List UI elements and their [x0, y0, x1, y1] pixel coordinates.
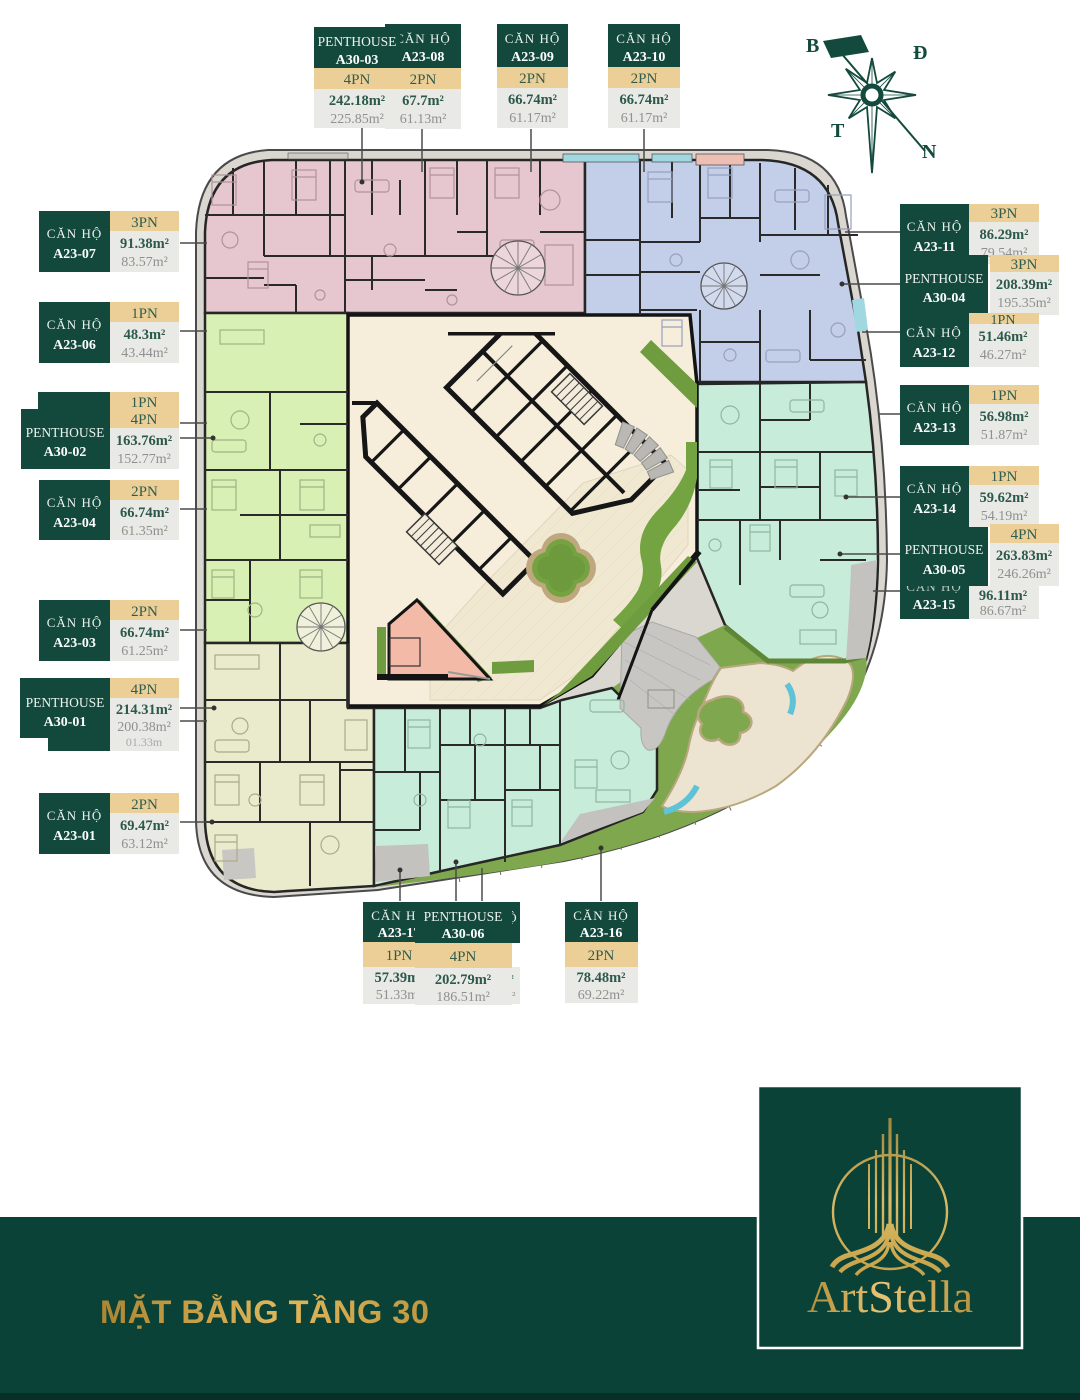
svg-text:2PN: 2PN: [588, 948, 615, 964]
svg-text:CĂN HỘ: CĂN HỘ: [395, 31, 450, 46]
svg-text:CĂN HỘ: CĂN HỘ: [505, 31, 560, 46]
svg-text:69.22m²: 69.22m²: [578, 988, 625, 1003]
svg-text:51.87m²: 51.87m²: [981, 428, 1028, 443]
svg-text:4PN: 4PN: [450, 949, 477, 965]
svg-text:86.67m²: 86.67m²: [980, 604, 1027, 619]
svg-text:CĂN HỘ: CĂN HỘ: [573, 908, 628, 923]
svg-text:CĂN HỘ: CĂN HỘ: [907, 400, 962, 415]
svg-text:195.35m²: 195.35m²: [997, 296, 1051, 311]
svg-text:83.57m²: 83.57m²: [121, 255, 168, 270]
svg-text:A23-09: A23-09: [511, 50, 554, 65]
svg-text:A23-11: A23-11: [914, 240, 956, 255]
svg-text:A23-08: A23-08: [402, 50, 445, 65]
svg-text:CĂN HỘ: CĂN HỘ: [47, 495, 102, 510]
svg-text:CĂN HỘ: CĂN HỘ: [906, 325, 961, 340]
svg-text:69.47m²: 69.47m²: [120, 818, 169, 834]
svg-text:152.77m²: 152.77m²: [117, 452, 171, 467]
svg-text:63.12m²: 63.12m²: [121, 837, 168, 852]
svg-text:61.25m²: 61.25m²: [121, 644, 168, 659]
svg-text:263.83m²: 263.83m²: [996, 548, 1052, 564]
svg-text:PENTHOUSE: PENTHOUSE: [26, 695, 105, 710]
svg-text:A23-04: A23-04: [53, 516, 96, 531]
svg-text:A23-03: A23-03: [53, 636, 96, 651]
svg-text:96.11m²: 96.11m²: [979, 588, 1027, 604]
svg-text:PENTHOUSE: PENTHOUSE: [905, 542, 984, 557]
svg-text:78.48m²: 78.48m²: [576, 970, 625, 986]
svg-text:A23-10: A23-10: [623, 50, 666, 65]
svg-text:4PN: 4PN: [344, 72, 371, 88]
svg-text:66.74m²: 66.74m²: [120, 505, 169, 521]
svg-text:PENTHOUSE: PENTHOUSE: [905, 271, 984, 286]
svg-text:66.74m²: 66.74m²: [508, 92, 557, 108]
svg-text:46.27m²: 46.27m²: [980, 348, 1027, 363]
svg-text:208.39m²: 208.39m²: [996, 277, 1052, 293]
svg-text:66.74m²: 66.74m²: [120, 625, 169, 641]
svg-text:67.7m²: 67.7m²: [402, 93, 444, 109]
svg-text:A30-01: A30-01: [44, 715, 87, 730]
svg-text:202.79m²: 202.79m²: [435, 972, 491, 988]
svg-text:4PN: 4PN: [131, 412, 158, 428]
svg-text:4PN: 4PN: [1011, 527, 1038, 543]
svg-text:43.44m²: 43.44m²: [121, 346, 168, 361]
svg-text:1PN: 1PN: [131, 306, 158, 322]
svg-text:CĂN HỘ: CĂN HỘ: [616, 31, 671, 46]
svg-text:1PN: 1PN: [991, 469, 1018, 485]
svg-text:A23-16: A23-16: [580, 926, 623, 941]
svg-text:225.85m²: 225.85m²: [330, 112, 384, 127]
svg-text:A30-04: A30-04: [923, 291, 966, 306]
svg-text:A23-12: A23-12: [913, 346, 956, 361]
svg-text:PENTHOUSE: PENTHOUSE: [424, 909, 503, 924]
svg-text:2PN: 2PN: [631, 71, 658, 87]
svg-text:A23-01: A23-01: [53, 829, 96, 844]
svg-text:T: T: [831, 120, 845, 142]
svg-text:ArtStella: ArtStella: [807, 1271, 973, 1322]
svg-text:2PN: 2PN: [131, 484, 158, 500]
svg-text:56.98m²: 56.98m²: [979, 409, 1028, 425]
svg-text:2PN: 2PN: [131, 797, 158, 813]
svg-text:1PN: 1PN: [991, 388, 1018, 404]
svg-text:A23-14: A23-14: [913, 502, 956, 517]
svg-text:CĂN HỘ: CĂN HỘ: [47, 226, 102, 241]
svg-text:A30-05: A30-05: [923, 563, 966, 578]
svg-text:N: N: [922, 141, 937, 163]
svg-text:2PN: 2PN: [410, 72, 437, 88]
svg-text:A23-06: A23-06: [53, 338, 96, 353]
svg-text:51.46m²: 51.46m²: [978, 329, 1027, 345]
svg-text:CĂN HỘ: CĂN HỘ: [47, 808, 102, 823]
svg-text:MẶT BẰNG TẦNG 30: MẶT BẰNG TẦNG 30: [100, 1293, 429, 1330]
svg-text:3PN: 3PN: [1011, 257, 1038, 273]
svg-text:242.18m²: 242.18m²: [329, 93, 385, 109]
svg-text:61.17m²: 61.17m²: [509, 111, 556, 126]
svg-text:214.31m²: 214.31m²: [116, 702, 172, 718]
svg-text:59.62m²: 59.62m²: [979, 490, 1028, 506]
svg-text:A30-06: A30-06: [442, 927, 485, 942]
svg-text:1PN: 1PN: [386, 948, 413, 964]
svg-text:246.26m²: 246.26m²: [997, 567, 1051, 582]
svg-text:3PN: 3PN: [131, 215, 158, 231]
svg-text:PENTHOUSE: PENTHOUSE: [26, 425, 105, 440]
svg-text:61.17m²: 61.17m²: [621, 111, 668, 126]
svg-text:66.74m²: 66.74m²: [619, 92, 668, 108]
svg-text:48.3m²: 48.3m²: [124, 327, 166, 343]
svg-text:A23-17: A23-17: [378, 926, 421, 941]
svg-text:186.51m²: 186.51m²: [436, 990, 490, 1005]
svg-text:CĂN HỘ: CĂN HỘ: [907, 219, 962, 234]
svg-text:A23-13: A23-13: [913, 421, 956, 436]
svg-text:54.19m²: 54.19m²: [981, 509, 1028, 524]
svg-text:86.29m²: 86.29m²: [979, 227, 1028, 243]
svg-text:A30-03: A30-03: [336, 53, 379, 68]
svg-text:1PN: 1PN: [131, 395, 158, 411]
svg-text:3PN: 3PN: [991, 206, 1018, 222]
svg-text:61.13m²: 61.13m²: [400, 112, 447, 127]
svg-text:200.38m²: 200.38m²: [117, 720, 171, 735]
svg-text:01.33m: 01.33m: [126, 735, 163, 749]
svg-text:Đ: Đ: [913, 42, 927, 64]
svg-text:CĂN HỘ: CĂN HỘ: [907, 481, 962, 496]
svg-text:A30-02: A30-02: [44, 445, 87, 460]
svg-text:PENTHOUSE: PENTHOUSE: [318, 34, 397, 49]
svg-text:A23-07: A23-07: [53, 247, 96, 262]
svg-text:CĂN HỘ: CĂN HỘ: [47, 317, 102, 332]
svg-text:61.35m²: 61.35m²: [121, 524, 168, 539]
svg-text:163.76m²: 163.76m²: [116, 433, 172, 449]
svg-text:A23-15: A23-15: [913, 598, 956, 613]
svg-text:CĂN HỘ: CĂN HỘ: [47, 615, 102, 630]
svg-text:2PN: 2PN: [131, 604, 158, 620]
svg-text:91.38m²: 91.38m²: [120, 236, 169, 252]
svg-text:B: B: [806, 35, 819, 57]
svg-text:4PN: 4PN: [131, 682, 158, 698]
svg-text:2PN: 2PN: [519, 71, 546, 87]
